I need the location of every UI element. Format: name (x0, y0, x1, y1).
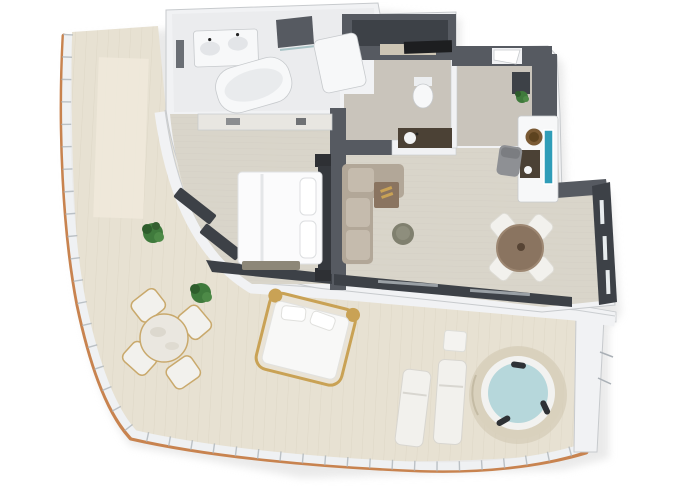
round-pouf (392, 223, 414, 245)
pillow-2 (300, 221, 316, 258)
desk-chair[interactable] (496, 144, 523, 177)
outdoor-table (140, 314, 188, 362)
daybed-pillow-1 (281, 305, 306, 321)
sofa-cushion-top (348, 168, 374, 192)
foot-bench (242, 261, 300, 270)
dining-window-1 (600, 200, 605, 224)
table-marble-vein-2 (165, 342, 179, 350)
shower-wall (276, 16, 314, 48)
sofa-cushion-1 (346, 198, 370, 227)
living-north-wall-dark (344, 140, 392, 155)
dining-window-3 (606, 270, 611, 294)
floor-plan-svg (0, 0, 680, 486)
toilet-tap (416, 133, 419, 136)
entry-east-wall (532, 54, 557, 116)
console-sink (524, 166, 532, 174)
dining-window-2 (603, 236, 608, 260)
jacuzzi-water (488, 363, 548, 423)
dining-table-center (517, 243, 525, 251)
lounger-side-table (443, 330, 467, 352)
floor-plan-image (0, 0, 680, 486)
dresser (198, 114, 332, 130)
corner-tray-table (374, 182, 399, 208)
double-vanity (193, 29, 258, 67)
jacuzzi[interactable] (469, 346, 567, 444)
sun-lounger-2[interactable] (433, 359, 467, 445)
round-bowl-inner (529, 132, 539, 142)
bathroom-shelf (176, 40, 184, 68)
entry-console (512, 72, 530, 94)
sofa-cushion-2 (346, 230, 370, 260)
double-bed[interactable] (238, 154, 331, 281)
toilet-sink (404, 132, 416, 144)
dresser-item-2 (296, 118, 306, 125)
dresser-item-1 (226, 118, 240, 125)
table-marble-vein-1 (150, 327, 166, 337)
toilet-bowl (413, 84, 433, 108)
nightstand-top (315, 154, 331, 167)
pillow-1 (300, 178, 316, 215)
console-dark-section (520, 150, 540, 178)
side-balcony-runner (93, 57, 149, 219)
tv-screen (544, 130, 553, 184)
closet-counter (404, 40, 452, 54)
